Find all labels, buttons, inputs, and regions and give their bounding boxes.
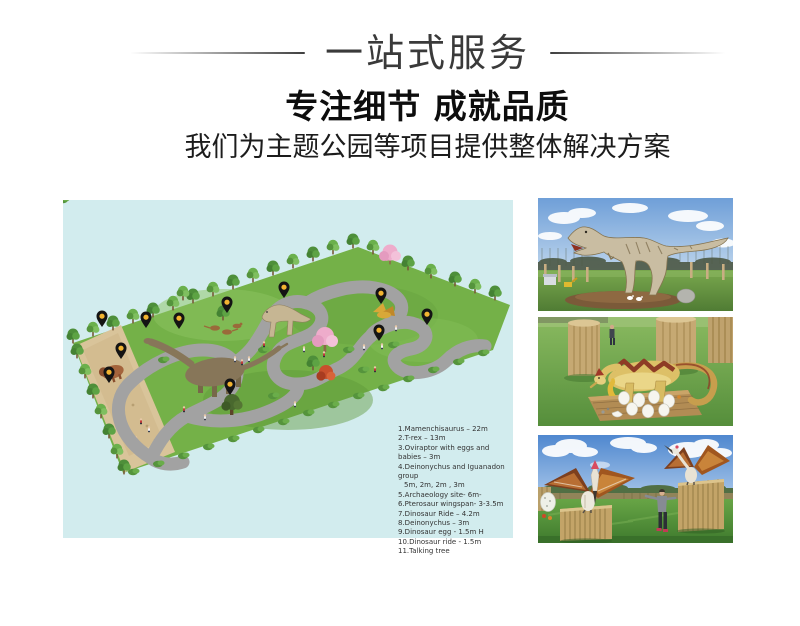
trex-eye bbox=[585, 231, 587, 233]
map-pin bbox=[97, 311, 108, 328]
photo-trex bbox=[538, 198, 733, 311]
header: 一站式服务 专注细节 成就品质 我们为主题公园等项目提供整体解决方案 bbox=[0, 0, 800, 163]
legend-line: 5m, 2m, 2m , 3m bbox=[398, 481, 513, 490]
title-row: 一站式服务 bbox=[0, 30, 800, 76]
head-crest bbox=[675, 445, 678, 448]
shed-roof bbox=[543, 274, 557, 277]
wood-post-right bbox=[656, 317, 696, 369]
legend-line: 4.Deinonychus and Iguanadon group bbox=[398, 463, 513, 482]
legend-line: 3.Oviraptor with eggs and babies – 3m bbox=[398, 444, 513, 463]
legend-line: 2.T-rex – 13m bbox=[398, 434, 513, 443]
map-legend: 1.Mamenchisaurus – 22m 2.T-rex – 13m 3.O… bbox=[398, 425, 513, 557]
photo-pterosaurs bbox=[538, 435, 733, 543]
wood-post-left bbox=[568, 319, 600, 376]
legend-line: 9.Dinosaur egg - 1.5m H bbox=[398, 528, 513, 537]
photo-dino-eggs bbox=[538, 317, 733, 426]
legend-line: 8.Deinonychus – 3m bbox=[398, 519, 513, 528]
promo-page: 一站式服务 专注细节 成就品质 我们为主题公园等项目提供整体解决方案 bbox=[0, 0, 800, 626]
page-subtitle: 专注细节 成就品质 bbox=[0, 88, 800, 126]
legend-line: 6.Pterosaur wingspan- 3-3.5m bbox=[398, 500, 513, 509]
page-title: 一站式服务 bbox=[325, 30, 530, 76]
page-tagline: 我们为主题公园等项目提供整体解决方案 bbox=[0, 132, 800, 163]
park-map: 1.Mamenchisaurus – 22m 2.T-rex – 13m 3.O… bbox=[63, 200, 513, 538]
title-divider-left bbox=[130, 52, 305, 54]
legend-line: 10.Dinosaur ride - 1.5m bbox=[398, 538, 513, 547]
legend-line: 11.Talking tree bbox=[398, 547, 513, 556]
shed bbox=[544, 276, 556, 285]
legend-line: 1.Mamenchisaurus – 22m bbox=[398, 425, 513, 434]
wood-crate-right bbox=[678, 479, 724, 532]
legend-line: 7.Dinosaur Ride – 4.2m bbox=[398, 510, 513, 519]
legend-line: 5.Archaeology site- 6m- bbox=[398, 491, 513, 500]
rock bbox=[677, 289, 695, 303]
title-divider-right bbox=[550, 52, 725, 54]
fence-panel-right bbox=[708, 317, 733, 363]
